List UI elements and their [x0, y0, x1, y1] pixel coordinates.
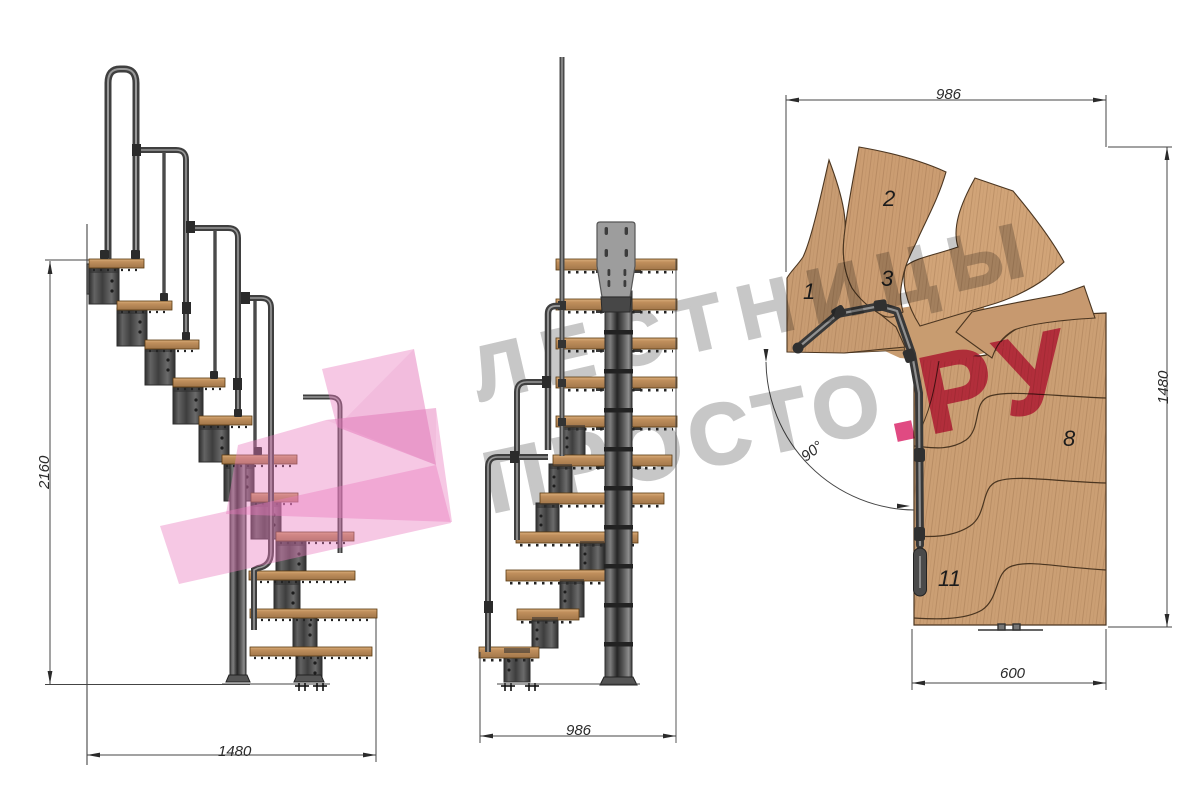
svg-text:600: 600	[1000, 665, 1026, 682]
svg-text:986: 986	[566, 722, 592, 739]
svg-text:1480: 1480	[218, 743, 252, 760]
svg-text:1480: 1480	[1155, 370, 1172, 404]
svg-text:11: 11	[938, 566, 961, 591]
svg-text:2160: 2160	[36, 455, 53, 490]
svg-text:986: 986	[936, 86, 962, 103]
svg-text:2: 2	[882, 186, 895, 211]
